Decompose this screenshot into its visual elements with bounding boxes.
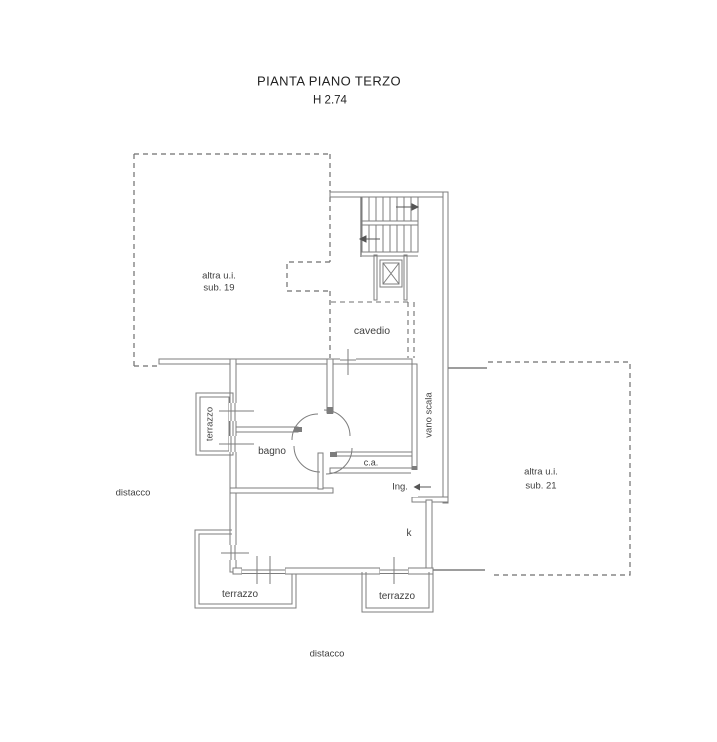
dashed-boundary-sub21 [488,362,630,575]
page-title: PIANTA PIANO TERZO [257,75,401,88]
room-label-terrazzo-left: terrazzo [205,407,215,441]
floorplan-page: PIANTA PIANO TERZO H 2.74 altra u.i. sub… [0,0,717,742]
area-label-sub19-line1: altra u.i. [202,271,236,281]
boundary-lines [361,197,487,570]
floorplan-drawing [0,0,717,742]
room-label-kitchen: k [407,529,412,539]
area-label-sub21-line2: sub. 21 [525,481,556,491]
windows [219,349,408,584]
room-label-terrazzo-bottom-left: terrazzo [222,590,258,600]
entry-door [411,466,431,497]
room-label-bagno: bagno [257,447,287,457]
walls [159,192,448,574]
area-label-sub21-line1: altra u.i. [524,467,558,477]
area-label-distacco-bottom: distacco [310,649,345,659]
room-label-cavedio: cavedio [354,326,390,337]
room-label-ca: c.a. [363,459,380,468]
room-label-ingresso: Ing. [391,482,409,492]
room-label-terrazzo-bottom-right: terrazzo [379,592,415,602]
ceiling-height-label: H 2.74 [313,95,347,107]
dashed-boundary-sub19 [134,154,330,366]
elevator [380,260,402,287]
room-label-vano-scala: vano scala [424,392,434,437]
staircase [362,197,418,256]
area-label-distacco-left: distacco [116,488,151,498]
area-label-sub19-line2: sub. 19 [203,283,234,293]
